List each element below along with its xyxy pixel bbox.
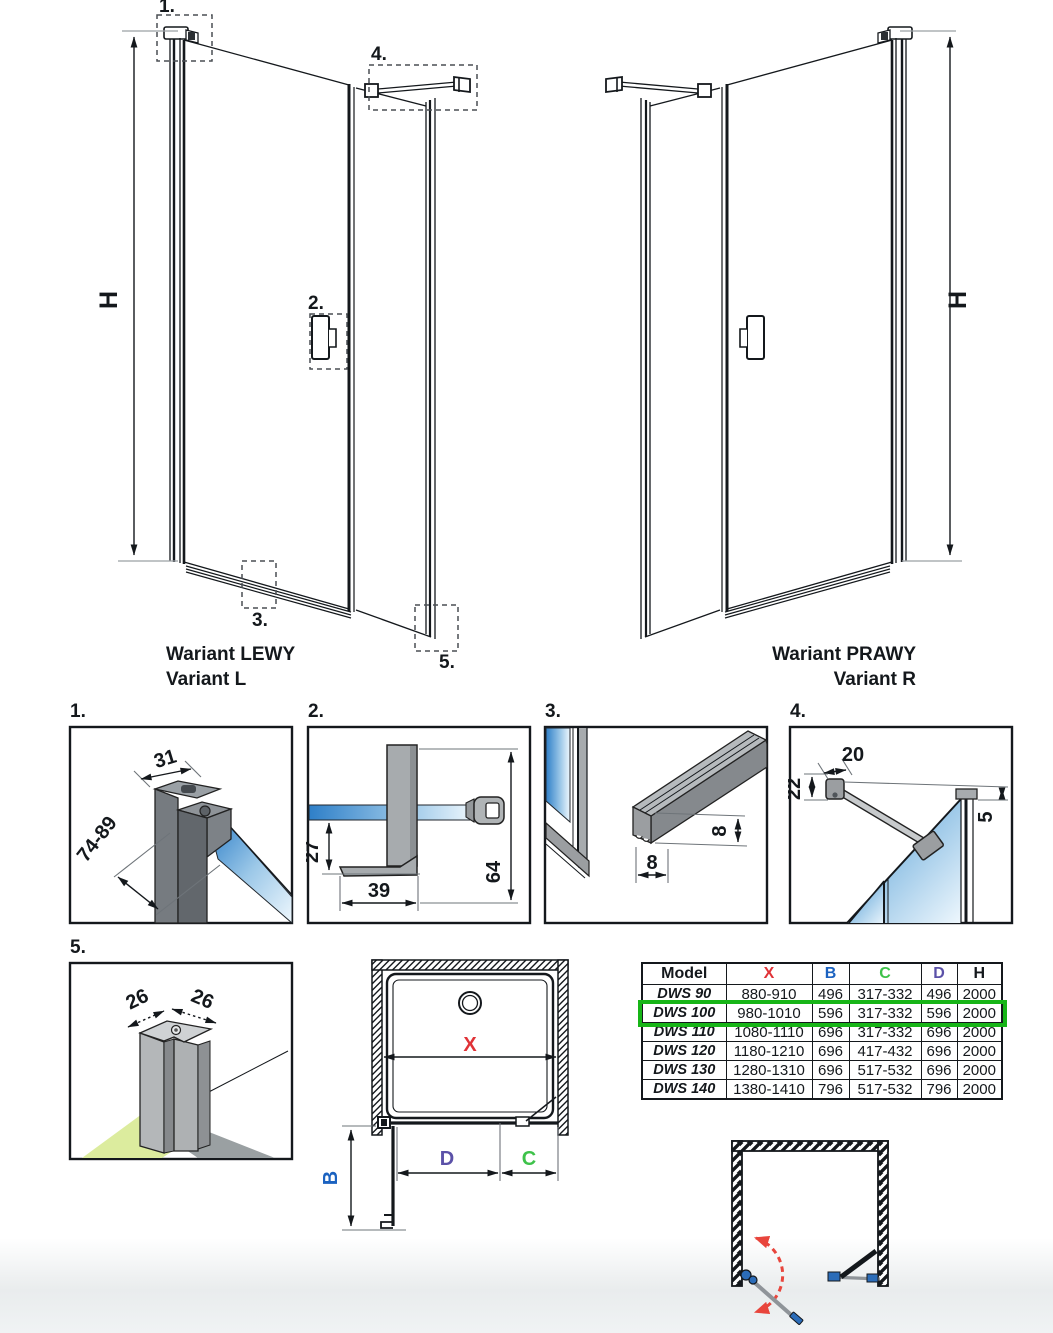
height-label: H [944,291,972,309]
height-label: H [95,291,123,309]
detail-4-label: 4. [790,701,806,722]
swing-fixed-panel [828,1251,880,1282]
dim-b-label: B [320,1171,342,1185]
header-h: H [957,963,1002,985]
header-x: X [726,963,812,985]
plan-view: X B D C [320,945,620,1265]
callout-4: 4. [371,44,387,65]
dim-20: 20 [842,744,864,766]
caption-left-line1: Wariant LEWY [166,644,295,665]
left-variant-drawing: H 1. 2. 3. 4. 5. Wariant LEWY Variant L [60,0,500,690]
table-row: DWS 110 1080-1110 696 317-332 696 2000 [642,1023,1002,1042]
caption-right-line1: Wariant PRAWY [772,644,916,665]
detail-2-handle-profile: 2. 27 39 [306,701,534,927]
door-line-art-right [606,27,912,639]
height-dimension-right: H [900,31,972,561]
table-row: DWS 90 880-910 496 317-332 496 2000 [642,985,1002,1004]
dim-x-label: X [463,1034,477,1056]
detail-3-label: 3. [545,701,561,722]
callout-box-3 [242,561,276,608]
detail-2-label: 2. [308,701,324,722]
table-header-row: Model X B C D H [642,963,1002,985]
dim-8-horizontal: 8 [646,852,657,874]
dim-39: 39 [368,880,390,902]
table-row: DWS 140 1380-1410 796 517-532 796 2000 [642,1080,1002,1100]
dim-c-label: C [522,1148,536,1170]
detail-5-corner-profile: 5. 26 26 [68,937,296,1163]
door-swing-diagram [690,1133,1010,1333]
height-dimension-left: H [95,31,178,561]
door-line-art-left [164,27,470,639]
detail-3-threshold: 3. 8 [543,701,771,927]
dim-d-label: D [440,1148,454,1170]
detail-1-wall-profile: 1. 31 74-89 [68,701,296,927]
header-c: C [849,963,921,985]
callout-3: 3. [252,610,268,631]
caption-right-line2: Variant R [834,669,917,690]
callout-box-5 [415,605,458,651]
table-row: DWS 120 1180-1210 696 417-432 696 2000 [642,1042,1002,1061]
swing-walls [732,1141,888,1286]
caption-left-line2: Variant L [166,669,247,690]
detail-1-label: 1. [70,701,86,722]
dim-5: 5 [975,811,997,822]
header-model: Model [642,963,726,985]
header-b: B [812,963,849,985]
right-variant-drawing: H Wariant PRAWY Variant R [588,0,1018,690]
detail-4-support-bar: 4. [788,701,1016,927]
table-row-highlighted: DWS 100 980-1010 596 317-332 596 2000 [642,1004,1002,1023]
detail-2-frame [308,727,530,923]
callout-2: 2. [308,293,324,314]
swing-door [741,1270,803,1325]
callout-5: 5. [439,652,455,673]
shower-door-technical-drawing: H 1. 2. 3. 4. 5. Wariant LEWY Variant L … [0,0,1053,1333]
table-row: DWS 130 1280-1310 696 517-532 696 2000 [642,1061,1002,1080]
dim-27: 27 [306,841,323,863]
dim-22: 22 [788,778,805,800]
swing-arc [756,1238,783,1312]
header-d: D [921,963,957,985]
dimension-table: Model X B C D H DWS 90 880-910 496 317-3… [641,962,1003,1100]
dim-8-vertical: 8 [709,825,731,836]
detail-5-label: 5. [70,937,86,958]
dim-64: 64 [483,860,505,883]
callout-1: 1. [159,0,175,17]
